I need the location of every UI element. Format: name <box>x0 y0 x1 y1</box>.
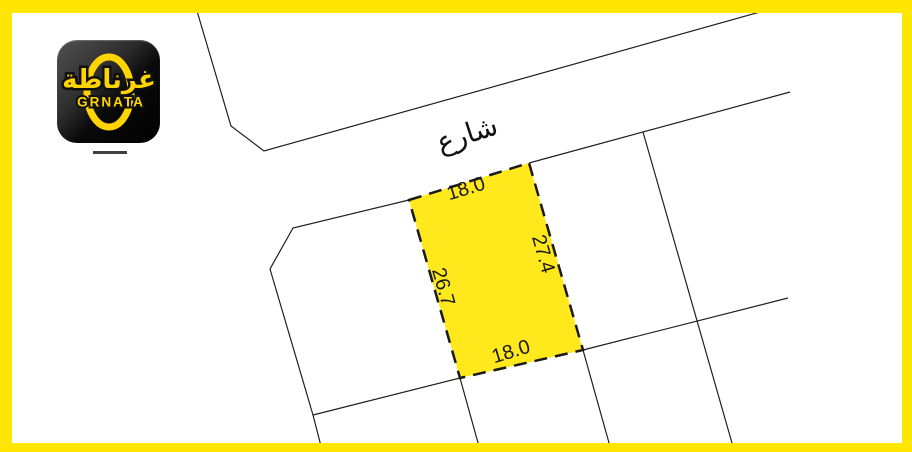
rear-boundary-left-line <box>313 378 460 415</box>
logo-latin-name: GRNATA <box>77 95 145 110</box>
street-label: شارع <box>432 109 501 160</box>
rear-boundary-right-line <box>583 298 788 350</box>
plot-map-image: شارع 18.0 27.4 26.7 18.0 غرناطة GRNATA <box>0 0 912 452</box>
street-south-boundary-right-line <box>529 92 790 163</box>
logo-arabic-name: غرناطة <box>62 65 156 95</box>
grnata-logo-art: غرناطة GRNATA <box>57 40 160 143</box>
left-parcel-boundary-line <box>270 200 409 450</box>
right-parcel-divider-line <box>643 132 734 450</box>
plot-right-edge-extension-line <box>583 350 611 450</box>
grnata-logo: غرناطة GRNATA <box>57 40 160 143</box>
plot-left-edge-extension-line <box>460 378 480 450</box>
logo-underline <box>93 151 127 154</box>
